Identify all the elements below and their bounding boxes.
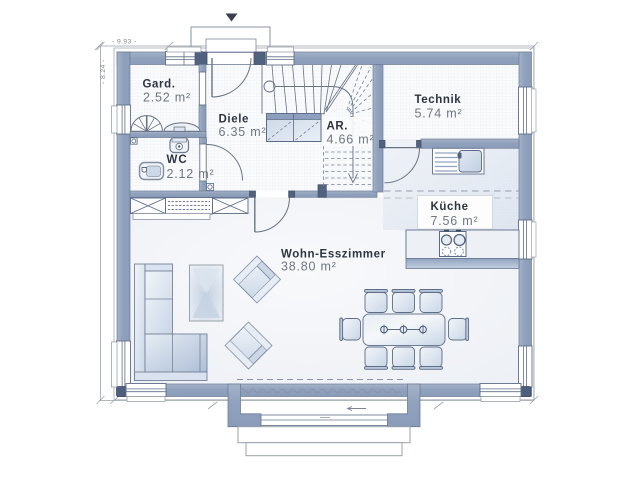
svg-text:Gard.: Gard. bbox=[143, 79, 176, 91]
svg-text:5.74 m²: 5.74 m² bbox=[415, 107, 463, 121]
svg-text:Technik: Technik bbox=[415, 94, 462, 106]
svg-text:2.52 m²: 2.52 m² bbox=[143, 91, 191, 105]
svg-text:- 9.93 -: - 9.93 - bbox=[112, 39, 137, 46]
svg-text:6.35 m²: 6.35 m² bbox=[219, 125, 267, 139]
svg-text:2.12 m²: 2.12 m² bbox=[167, 167, 215, 181]
svg-text:4.66 m²: 4.66 m² bbox=[327, 133, 375, 147]
svg-text:AR.: AR. bbox=[327, 121, 349, 133]
svg-text:Küche: Küche bbox=[431, 201, 469, 213]
svg-text:WC: WC bbox=[167, 154, 188, 166]
svg-text:- 8.24 -: - 8.24 - bbox=[100, 59, 107, 84]
svg-text:38.80 m²: 38.80 m² bbox=[281, 260, 337, 274]
svg-text:Diele: Diele bbox=[219, 114, 250, 126]
svg-text:7.56 m²: 7.56 m² bbox=[431, 214, 479, 228]
